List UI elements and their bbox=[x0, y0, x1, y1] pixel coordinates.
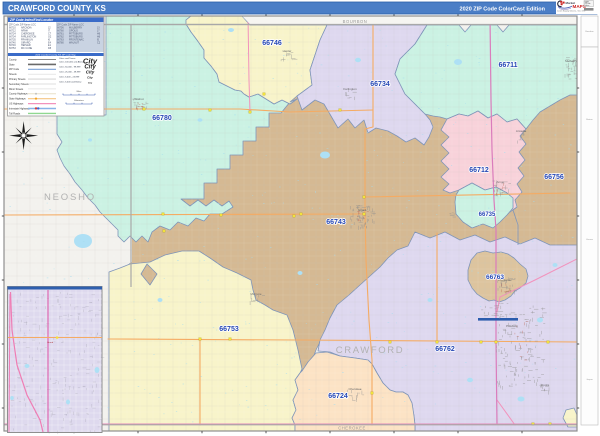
svg-text:Primary Streets: Primary Streets bbox=[9, 78, 26, 81]
svg-text:66712: 66712 bbox=[469, 167, 489, 174]
svg-text:NEOSHO: NEOSHO bbox=[44, 192, 96, 203]
svg-text:County Highways: County Highways bbox=[9, 93, 28, 96]
svg-text:Cherokee: Cherokee bbox=[348, 387, 361, 391]
svg-text:Arma: Arma bbox=[496, 180, 503, 184]
svg-text:Opolis: Opolis bbox=[541, 383, 550, 387]
svg-text:Walnut: Walnut bbox=[134, 97, 143, 101]
svg-text:66762: 66762 bbox=[435, 346, 455, 353]
svg-text:ZIP Code Index/Find Locator: ZIP Code Index/Find Locator bbox=[9, 18, 54, 22]
svg-text:66743: 66743 bbox=[326, 219, 346, 226]
svg-text:Farlington: Farlington bbox=[343, 87, 357, 91]
svg-text:66724: 66724 bbox=[328, 393, 348, 400]
svg-text:66756: 66756 bbox=[544, 174, 564, 181]
svg-text:State Highways: State Highways bbox=[9, 98, 26, 101]
svg-text:66746: 66746 bbox=[262, 40, 282, 47]
svg-text:Secondary Streets: Secondary Streets bbox=[9, 83, 29, 86]
svg-text:Girard: Girard bbox=[358, 208, 367, 212]
svg-text:Hepler: Hepler bbox=[283, 49, 292, 53]
svg-text:66735: 66735 bbox=[479, 212, 496, 218]
svg-text:Cities 5,000 - 24,999: Cities 5,000 - 24,999 bbox=[59, 76, 80, 79]
svg-text:Minor Streets: Minor Streets bbox=[9, 88, 24, 91]
svg-text:CRAWFORD: CRAWFORD bbox=[336, 345, 404, 356]
svg-text:Streets: Streets bbox=[9, 73, 17, 76]
svg-text:US Highways: US Highways bbox=[9, 103, 24, 106]
svg-text:66780: 66780 bbox=[57, 41, 64, 44]
svg-text:Interstate Highways: Interstate Highways bbox=[9, 107, 31, 110]
svg-text:2020 ZIP Code ColorCast Editio: 2020 ZIP Code ColorCast Edition bbox=[460, 6, 546, 12]
svg-text:Girard: Girard bbox=[47, 341, 54, 344]
svg-text:Toll Roads: Toll Roads bbox=[9, 112, 21, 115]
svg-text:BOURBON: BOURBON bbox=[343, 19, 368, 24]
svg-text:ZIPCode: ZIPCode bbox=[585, 3, 591, 5]
svg-text:Jasper: Jasper bbox=[586, 378, 593, 381]
svg-text:State: State bbox=[9, 63, 15, 66]
svg-text:66763: 66763 bbox=[486, 274, 504, 281]
svg-text:Mulberry: Mulberry bbox=[565, 59, 577, 63]
svg-text:Miles: Miles bbox=[77, 91, 82, 93]
svg-text:McCune: McCune bbox=[250, 292, 262, 296]
svg-text:MC CUNE: MC CUNE bbox=[21, 47, 33, 50]
svg-text:Arcadia: Arcadia bbox=[516, 129, 527, 133]
svg-text:Cities and Towns: Cities and Towns bbox=[59, 57, 76, 60]
svg-text:ZIP Code: ZIP Code bbox=[9, 68, 20, 71]
svg-text:Barton: Barton bbox=[586, 118, 593, 121]
svg-text:Cities 25,000 - 49,999: Cities 25,000 - 49,999 bbox=[59, 71, 81, 74]
svg-text:66753: 66753 bbox=[219, 326, 239, 333]
svg-text:Vernon: Vernon bbox=[586, 238, 594, 241]
svg-text:66711: 66711 bbox=[498, 62, 517, 69]
svg-text:City: City bbox=[87, 76, 93, 80]
svg-text:Cities 5,000 and Below: Cities 5,000 and Below bbox=[59, 81, 82, 84]
svg-text:Pittsburg: Pittsburg bbox=[506, 324, 518, 328]
svg-text:Bourbon: Bourbon bbox=[585, 30, 594, 33]
svg-text:CRAWFORD COUNTY, KS: CRAWFORD COUNTY, KS bbox=[8, 4, 106, 13]
svg-text:66734: 66734 bbox=[370, 81, 390, 88]
svg-text:66753: 66753 bbox=[9, 47, 16, 50]
svg-text:CHEROKEE: CHEROKEE bbox=[338, 425, 366, 430]
svg-text:Cities 100,000 and Above: Cities 100,000 and Above bbox=[59, 61, 85, 64]
svg-text:WALNUT: WALNUT bbox=[69, 41, 80, 44]
svg-text:County: County bbox=[9, 58, 17, 61]
svg-text:Kilometers: Kilometers bbox=[74, 99, 83, 102]
svg-text:Cities 50,000 - 99,999: Cities 50,000 - 99,999 bbox=[59, 66, 81, 69]
svg-text:66780: 66780 bbox=[152, 115, 172, 122]
svg-text:City: City bbox=[86, 70, 95, 75]
svg-text:2020 Crawford County, KS ZIP C: 2020 Crawford County, KS ZIP Code Map bbox=[35, 53, 76, 56]
